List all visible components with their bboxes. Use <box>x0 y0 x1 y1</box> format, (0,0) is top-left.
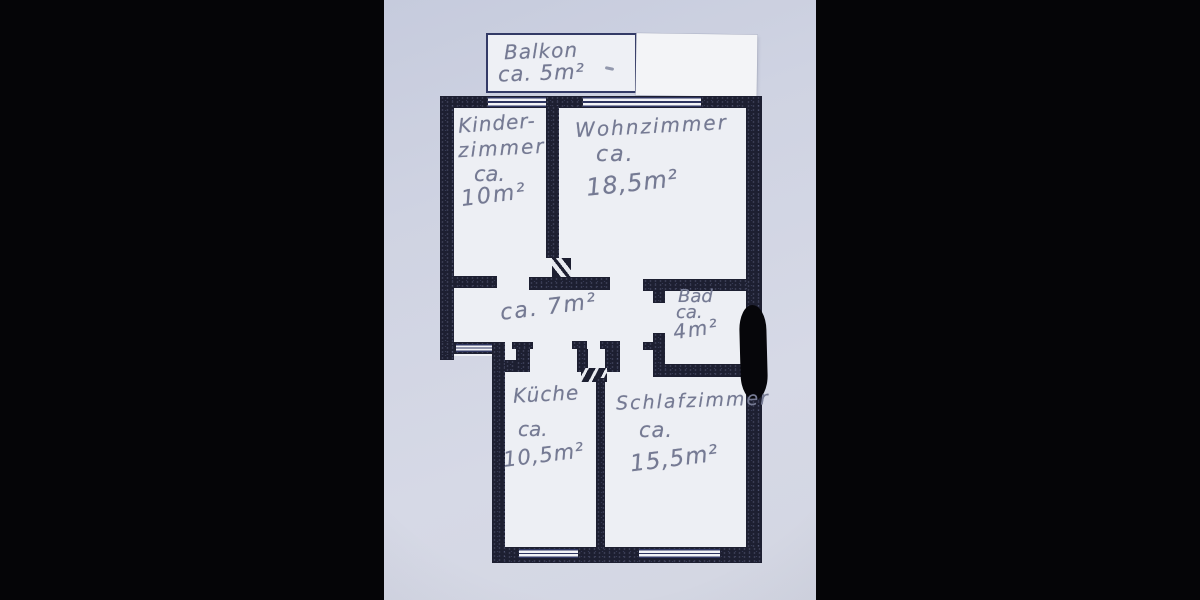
room-label-kinderzimmer-line2: zimmer <box>457 134 546 163</box>
wall-divider-kinder-wohnzimmer <box>546 106 559 258</box>
kueche-door-jamb <box>516 349 530 372</box>
entrance-jamb-left-cap <box>572 341 587 349</box>
wall-kinderzimmer-bottom <box>440 276 497 288</box>
window-flur-left <box>456 344 494 352</box>
window-kueche-bottom <box>519 549 578 558</box>
window-schlafzimmer-bottom <box>639 549 720 558</box>
paper-patch <box>636 33 758 97</box>
schlafzimmer-door-jamb-tick <box>643 342 654 350</box>
room-label-kueche: Küche <box>512 380 579 407</box>
screenshot-root: Balkon ca. 5m² Kinder- zimmer ca. 10m² W… <box>0 0 1200 600</box>
entrance-jamb-right <box>605 349 620 372</box>
room-area-balkon: ca. 5m² <box>498 59 586 86</box>
window-wohnzimmer-top <box>583 97 701 107</box>
room-approx-wohnzimmer: ca. <box>596 142 635 167</box>
room-approx-schlafzimmer: ca. <box>639 418 673 442</box>
wall-left <box>440 96 454 360</box>
entrance-jamb-right-cap <box>600 341 620 349</box>
door-swing-mark-kinderzimmer <box>552 258 571 278</box>
wall-bad-bottom <box>653 364 747 377</box>
wall-bad-left-stub <box>653 291 665 303</box>
marker-redaction <box>739 305 768 401</box>
kueche-door-jamb-cap <box>512 342 533 349</box>
wall-divider-kueche-schlafzimmer <box>596 378 605 549</box>
wall-flur-top <box>529 277 610 290</box>
room-approx-kueche: ca. <box>518 417 548 441</box>
floorplan-photo: Balkon ca. 5m² Kinder- zimmer ca. 10m² W… <box>384 0 816 600</box>
window-kinderzimmer-top <box>488 97 546 107</box>
